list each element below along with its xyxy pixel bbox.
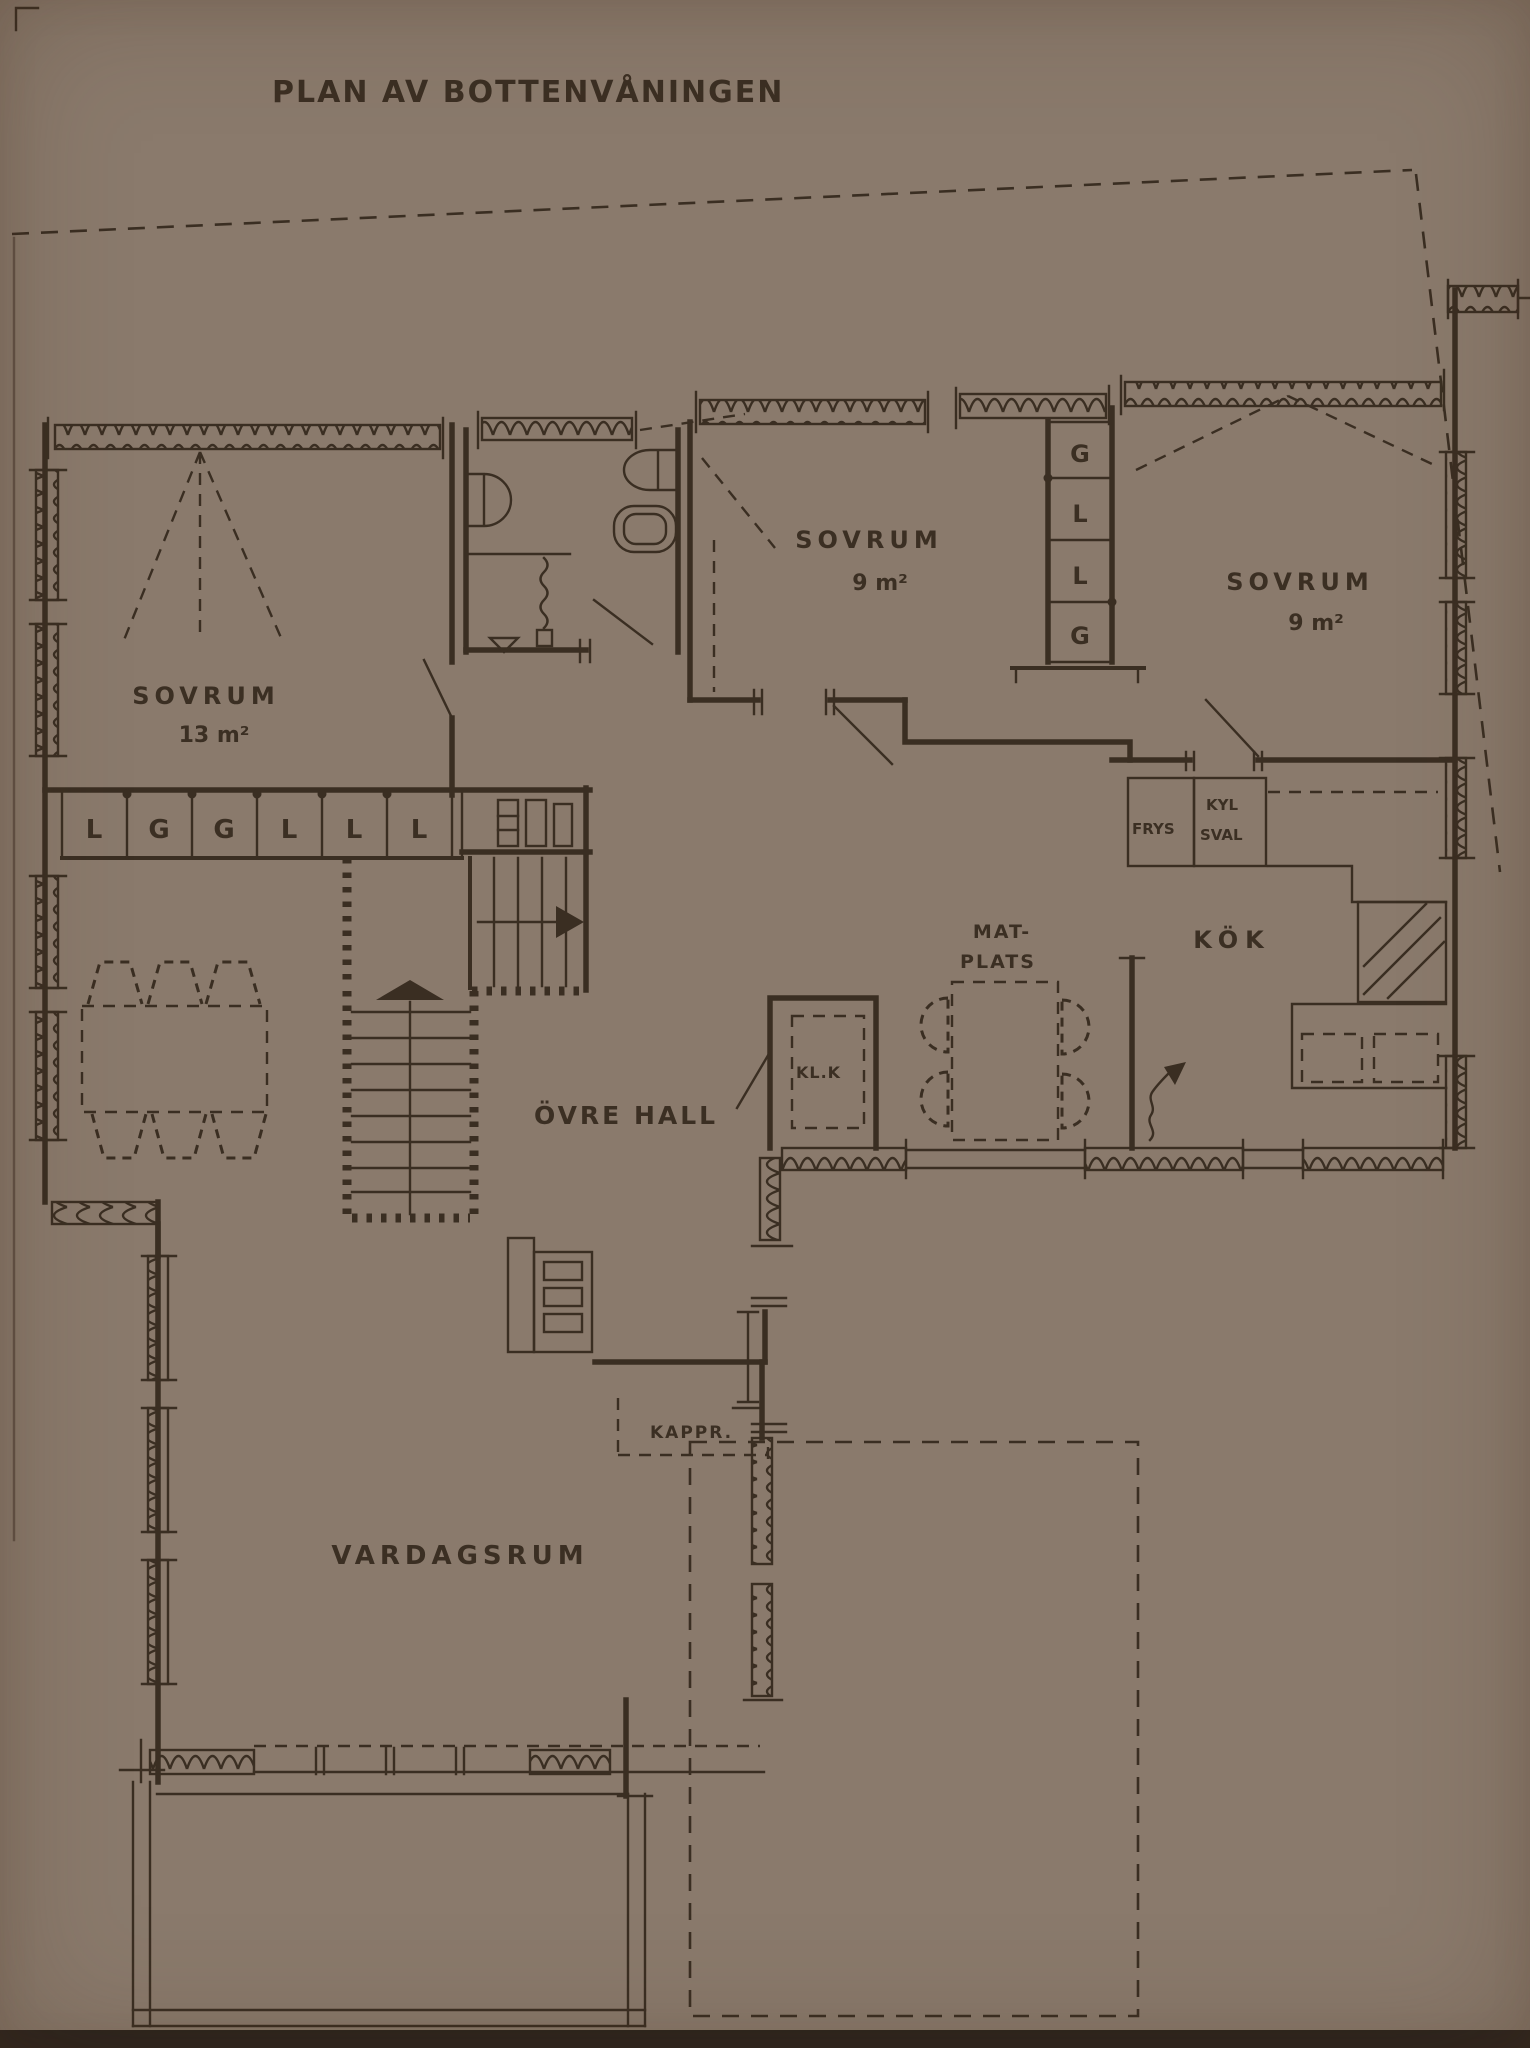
labels: PLAN AV BOTTENVÅNINGEN SOVRUM 13 m² SOVR… xyxy=(86,73,1374,1571)
floor-plan-drawing: PLAN AV BOTTENVÅNINGEN SOVRUM 13 m² SOVR… xyxy=(0,0,1530,2048)
matplats-furniture xyxy=(921,982,1089,1140)
label-sovrum-right-area: 9 m² xyxy=(1288,611,1344,636)
entry-arrow-squiggle xyxy=(1149,1073,1169,1140)
closet-letter: G xyxy=(148,815,169,845)
label-sovrum-mid: SOVRUM xyxy=(795,526,942,554)
wc-sink-icon xyxy=(624,450,678,490)
page-title: PLAN AV BOTTENVÅNINGEN xyxy=(272,73,784,110)
label-klk: KL.K xyxy=(796,1063,841,1082)
closet-letter: G xyxy=(213,815,234,845)
label-ovre-hall: ÖVRE HALL xyxy=(534,1100,718,1130)
closet-letter: L xyxy=(1072,500,1087,528)
living-room xyxy=(142,1224,764,1796)
label-kappr: KAPPR. xyxy=(650,1423,733,1443)
label-kyl-2: SVAL xyxy=(1200,826,1243,844)
label-sovrum-right: SOVRUM xyxy=(1226,568,1373,596)
counter-hatch xyxy=(1364,904,1444,998)
chair xyxy=(206,962,260,1004)
label-frys: FRYS xyxy=(1132,820,1175,838)
bathroom xyxy=(466,412,678,662)
closet-letter: G xyxy=(1070,622,1090,650)
balcony-furniture xyxy=(82,962,267,1158)
bedroom-right xyxy=(1112,280,1530,1148)
label-matplats-1: MAT- xyxy=(973,921,1031,943)
closet-letter: L xyxy=(411,815,428,845)
closet-letter: G xyxy=(1070,440,1090,468)
shower-curtain-icon xyxy=(541,558,548,628)
fireplace xyxy=(508,1238,592,1352)
label-kok: KÖK xyxy=(1193,924,1271,954)
floor-plan-photo: PLAN AV BOTTENVÅNINGEN SOVRUM 13 m² SOVR… xyxy=(0,0,1530,2048)
kappr-room xyxy=(595,1312,782,1700)
chair xyxy=(1062,1074,1089,1128)
chair xyxy=(921,998,948,1052)
sink-icon xyxy=(466,474,511,526)
south-wall xyxy=(752,1140,1443,1432)
bedroom-left xyxy=(124,425,452,795)
chair xyxy=(921,1072,948,1126)
label-vardagsrum: VARDAGSRUM xyxy=(331,1541,588,1571)
chair xyxy=(88,962,142,1004)
staircase xyxy=(347,852,590,1218)
vestibule-shelves xyxy=(498,788,586,852)
table xyxy=(82,1006,267,1112)
bedroom-mid xyxy=(690,386,1130,764)
closet-letter: L xyxy=(346,815,363,845)
chair xyxy=(152,1114,206,1158)
label-sovrum-mid-area: 9 m² xyxy=(852,571,908,596)
terrace xyxy=(120,1740,645,2026)
closet-letter: L xyxy=(1072,562,1087,590)
chair xyxy=(212,1114,266,1158)
label-kyl-1: KYL xyxy=(1206,796,1238,814)
chair xyxy=(148,962,202,1004)
label-sovrum-left-area: 13 m² xyxy=(179,723,250,748)
chair xyxy=(92,1114,146,1158)
chair xyxy=(1062,1000,1089,1054)
closet-letter: L xyxy=(281,815,298,845)
label-sovrum-left: SOVRUM xyxy=(132,682,279,710)
fridge-box xyxy=(1194,778,1266,866)
dining-table xyxy=(952,982,1058,1140)
closet-letter: L xyxy=(86,815,103,845)
photo-artifacts xyxy=(0,8,1530,2048)
label-matplats-2: PLATS xyxy=(960,951,1036,973)
